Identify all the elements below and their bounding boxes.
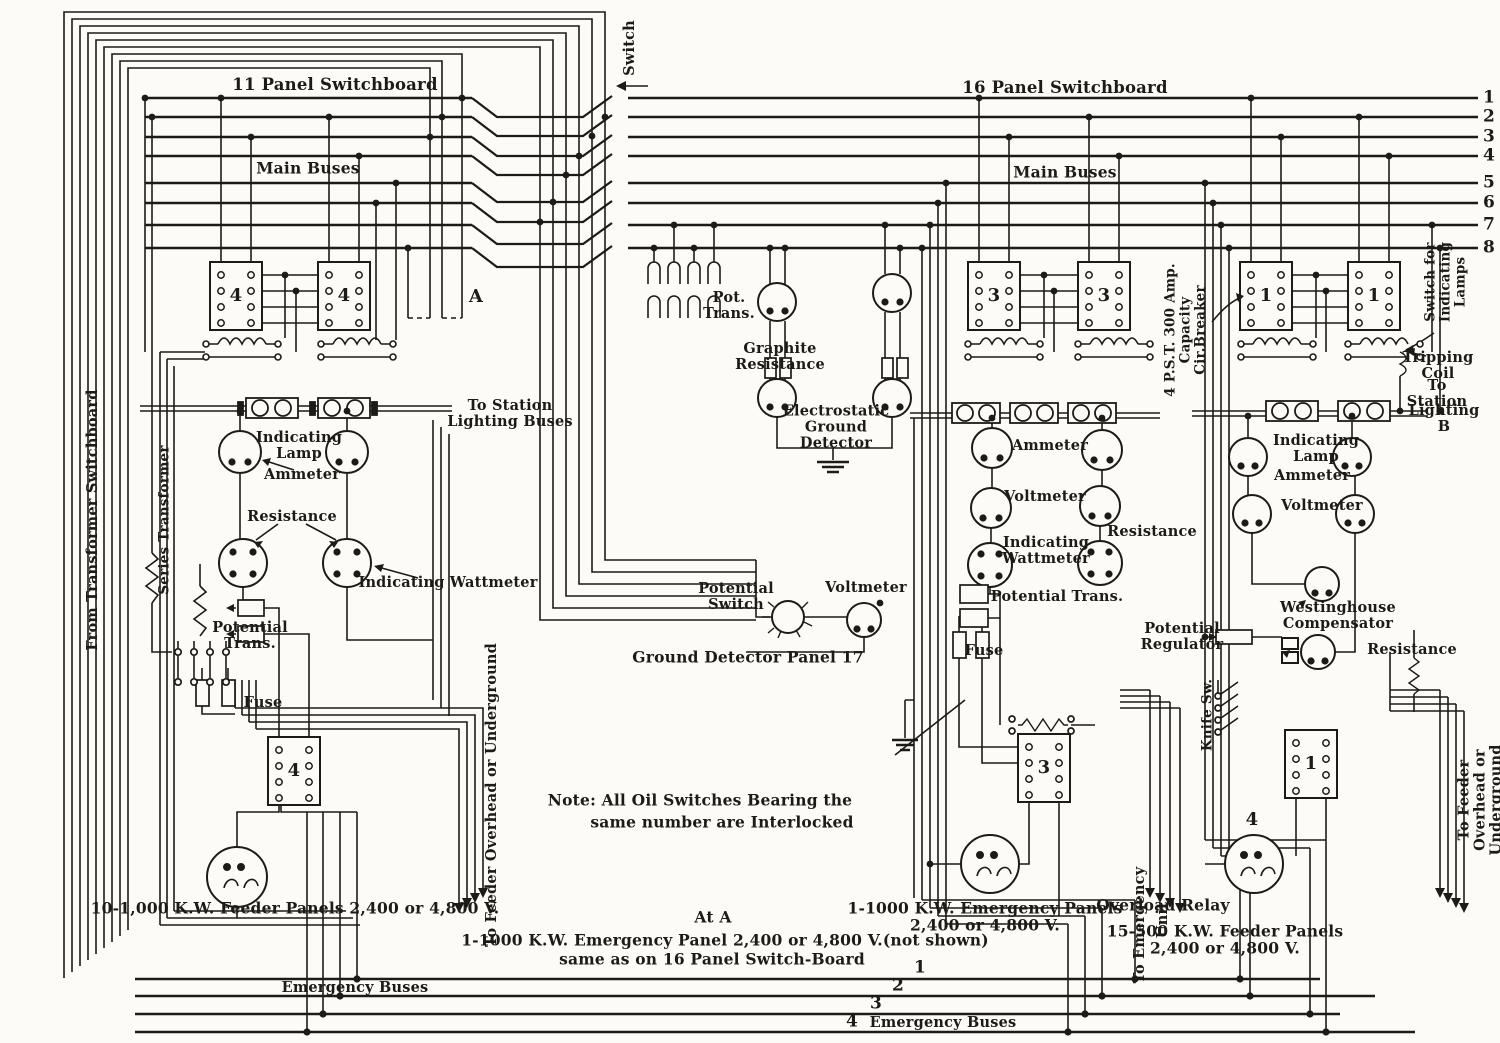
- westinghouse-compensator-label: Westinghouse Compensator: [1280, 600, 1396, 632]
- gd-voltmeter-dial: [847, 601, 882, 637]
- graphite-resistance-label: Graphite Resistance: [735, 341, 825, 373]
- wiring-diagram: 11 Panel Switchboard 16 Panel Switchboar…: [0, 0, 1500, 1043]
- emergency-bus-number-1: 1: [914, 958, 926, 977]
- bus-number-6: 6: [1483, 193, 1495, 212]
- indicating-lamp-right-label: Indicating Lamp: [1273, 433, 1359, 465]
- oil-switch-number-bottom-left: 4: [288, 761, 301, 781]
- switch-for-lamps-label: Switch for Indicating Lamps: [1423, 242, 1468, 322]
- emergency-buses-right-label: Emergency Buses: [870, 1015, 1017, 1031]
- electrostatic-ground-detector-label: Electrostatic Ground Detector: [783, 404, 890, 453]
- fuse-mid-label: Fuse: [965, 643, 1004, 659]
- feeder-panels-right-label: 15-500 K.W. Feeder Panels 2,400 or 4,800…: [1107, 923, 1344, 958]
- lighting-b-label: Lighting B: [1409, 403, 1480, 435]
- fuse-left-label: Fuse: [244, 695, 283, 711]
- indicating-lamp-left-label: Indicating Lamp: [256, 430, 342, 462]
- oil-switch-number-bottom-mid: 3: [1038, 758, 1051, 778]
- main-buses-right-label: Main Buses: [1013, 163, 1116, 180]
- oil-switch-number-bottom-right: 1: [1305, 754, 1318, 774]
- emergency-bus-number-3: 3: [870, 994, 882, 1013]
- oil-switch-number-mid-b: 3: [1098, 286, 1111, 306]
- potential-switch-label: Potential Switch: [698, 581, 774, 613]
- oil-switch-number-right-a: 1: [1260, 286, 1273, 306]
- bus-number-5: 5: [1483, 173, 1495, 192]
- overload-relay-label: Overload Relay: [1096, 896, 1230, 913]
- resistance-mid-label: Resistance: [1107, 524, 1197, 540]
- bus-number-7: 7: [1483, 215, 1495, 234]
- bus-number-1: 1: [1483, 88, 1495, 107]
- bus-number-8: 8: [1483, 238, 1495, 257]
- main-buses-left-label: Main Buses: [256, 159, 359, 176]
- note-line1: Note: All Oil Switches Bearing the: [548, 791, 852, 808]
- ammeter-left-label: Ammeter: [264, 467, 340, 483]
- resistance-left-label: Resistance: [247, 509, 337, 525]
- emergency-buses-left-label: Emergency Buses: [282, 980, 429, 996]
- left-board-title: 11 Panel Switchboard: [232, 76, 437, 94]
- marker-a: A: [469, 287, 483, 307]
- ammeter-mid-label: Ammeter: [1012, 438, 1088, 454]
- voltmeter-mid-label: Voltmeter: [1004, 489, 1086, 505]
- to-station-lighting-left-label: To Station Lighting Buses: [447, 398, 572, 430]
- bus-tie-switches: [472, 86, 648, 267]
- emergency-panels-mid-label: 1-1000 K.W. Emergency Panels 2,400 or 4,…: [847, 900, 1122, 935]
- feeder-panels-left-label: 10-1,000 K.W. Feeder Panels 2,400 or 4,8…: [91, 899, 500, 916]
- bus-number-3: 3: [1483, 127, 1495, 146]
- bus-number-4: 4: [1483, 146, 1495, 165]
- gd-voltmeter-label: Voltmeter: [825, 580, 907, 596]
- knife-sw-label: Knife Sw.: [1200, 679, 1215, 751]
- from-transformer-label: From Transformer Switchboard: [85, 389, 101, 650]
- potential-trans-left-label: Potential Trans.: [212, 620, 288, 652]
- ground-detector-panel-label: Ground Detector Panel 17: [632, 648, 863, 665]
- oil-switch-number-left-b: 4: [338, 286, 351, 306]
- bus-number-2: 2: [1483, 107, 1495, 126]
- to-feeder-left-label: To Feeder Overhead or Underground: [484, 643, 500, 947]
- oil-switch-number-left-a: 4: [230, 286, 243, 306]
- switch-label: Switch: [622, 20, 638, 76]
- to-feeder-right-label: To Feeder Overhead or Underground: [1457, 744, 1500, 855]
- voltmeter-right-label: Voltmeter: [1281, 498, 1363, 514]
- at-a-line2: same as on 16 Panel Switch-Board: [559, 950, 865, 967]
- indicating-wattmeter-mid-label: Indicating Wattmeter: [1002, 535, 1090, 567]
- note-line2: same number are Interlocked: [590, 813, 853, 830]
- oil-switch-number-mid-a: 3: [988, 286, 1001, 306]
- left-panel-wires: [140, 98, 483, 1032]
- number-below-right-switch: 4: [1246, 810, 1259, 830]
- right-board-title: 16 Panel Switchboard: [962, 79, 1167, 97]
- potential-regulator-label: Potential Regulator: [1141, 621, 1224, 653]
- wattmeter-dial: [219, 539, 1122, 587]
- diagram-artwork: [0, 0, 1500, 1043]
- resistance-right-label: Resistance: [1367, 642, 1457, 658]
- pot-trans-label: Pot. Trans.: [703, 290, 755, 322]
- ammeter-right-label: Ammeter: [1274, 468, 1350, 484]
- emergency-bus-number-4: 4: [846, 1012, 858, 1031]
- emergency-bus-number-2: 2: [892, 976, 904, 995]
- circuit-breaker-label: 4 P.S.T. 300 Amp. Capacity Cir.Breaker: [1163, 263, 1208, 397]
- series-transformer-label: Series Transformer: [157, 445, 172, 594]
- potential-trans-mid-label: Potential Trans.: [991, 589, 1124, 605]
- at-a-label: At A: [694, 908, 731, 925]
- indicating-wattmeter-left-label: Indicating Wattmeter: [358, 575, 537, 591]
- oil-switch-number-right-b: 1: [1368, 286, 1381, 306]
- right-panel-wires: [1192, 98, 1464, 1032]
